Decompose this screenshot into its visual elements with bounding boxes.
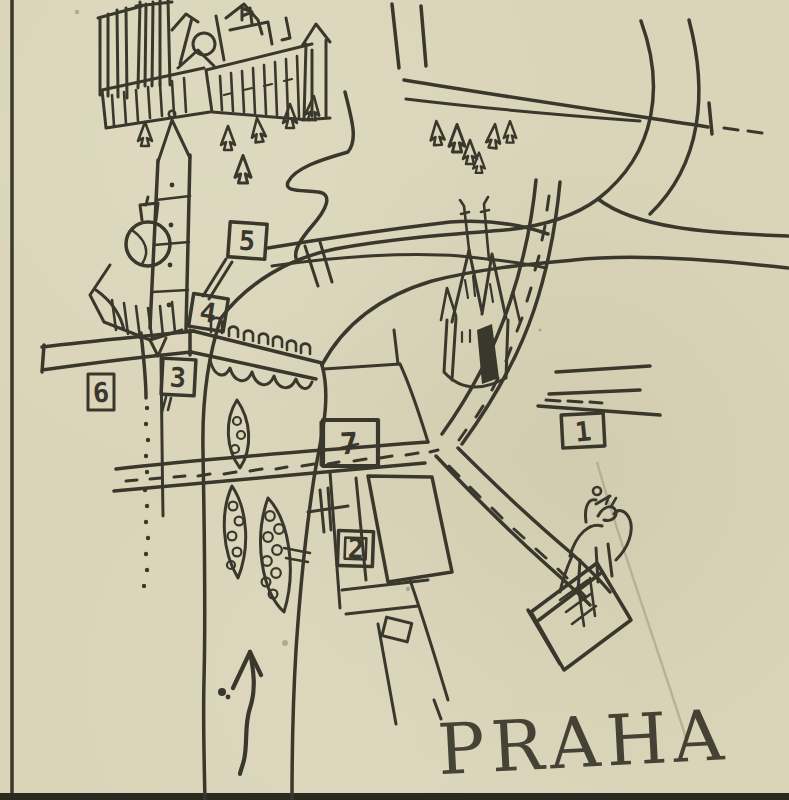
church-dome xyxy=(126,197,170,266)
dome-church-drawing xyxy=(90,111,190,356)
marker-box-3: 3 xyxy=(161,358,196,412)
road-end-tick xyxy=(709,103,712,134)
route-dashes xyxy=(546,400,602,403)
marker-label: 6 xyxy=(92,376,110,408)
pine-tree-icon xyxy=(221,126,235,150)
marker-label: 1 xyxy=(573,415,592,448)
river-bank xyxy=(322,257,788,365)
flow-arrow-icon xyxy=(218,652,261,774)
road-top xyxy=(392,4,762,134)
marker-box-1: 1 xyxy=(561,413,605,448)
pine-tree-icon xyxy=(235,156,251,184)
title-lettering: PRAHA xyxy=(436,694,732,791)
map-title: PRAHA xyxy=(434,694,732,791)
route-street-north xyxy=(442,180,560,444)
marker-label: 4 xyxy=(197,296,218,329)
river-bank xyxy=(203,318,221,800)
marker-box-6: 6 xyxy=(88,374,114,410)
marker-box-7: 7 xyxy=(321,420,378,466)
road-end-dashes xyxy=(724,128,762,133)
spire-masts xyxy=(460,197,489,260)
castle-roofs xyxy=(172,4,290,68)
stream-bridge-ticks xyxy=(305,242,332,286)
marker-flag-5: 5 xyxy=(203,222,267,299)
pine-tree-icon xyxy=(504,121,517,143)
city-block xyxy=(368,476,452,582)
castle-wall xyxy=(102,44,312,128)
tree-cluster-right xyxy=(429,121,516,173)
river-bank xyxy=(221,199,598,318)
pine-tree-icon xyxy=(429,121,445,146)
church-roofs xyxy=(90,265,182,356)
bridge-deck xyxy=(190,330,322,379)
prague-castle-drawing xyxy=(98,0,330,128)
flag-pole xyxy=(203,259,232,299)
pine-tree-icon xyxy=(138,122,152,146)
prague-sketch-map: 5 4 3 6 7 1 2 PRAHA xyxy=(0,0,789,800)
river-island-left xyxy=(224,486,245,578)
equestrian-statue-drawing xyxy=(528,487,631,670)
pine-tree-icon xyxy=(449,125,465,153)
cross-mark xyxy=(308,488,348,532)
marker-box-2: 2 xyxy=(337,530,373,566)
pine-tree-icon xyxy=(250,117,266,142)
pine-tree-icon xyxy=(486,123,502,148)
small-building xyxy=(382,617,412,642)
marker-box-4: 4 xyxy=(189,294,229,332)
pine-tree-icon xyxy=(283,104,297,128)
dotted-path xyxy=(142,406,150,588)
city-blocks-south xyxy=(308,472,452,724)
river-bank xyxy=(598,21,788,236)
river-bank xyxy=(650,20,699,214)
marker-label: 5 xyxy=(238,224,256,256)
vltava-river-drawing xyxy=(203,20,788,800)
stream-drawing xyxy=(287,92,353,258)
marker-label: 2 xyxy=(347,533,364,565)
streets-near-marker-1 xyxy=(538,366,660,415)
marker-label: 3 xyxy=(169,362,187,394)
